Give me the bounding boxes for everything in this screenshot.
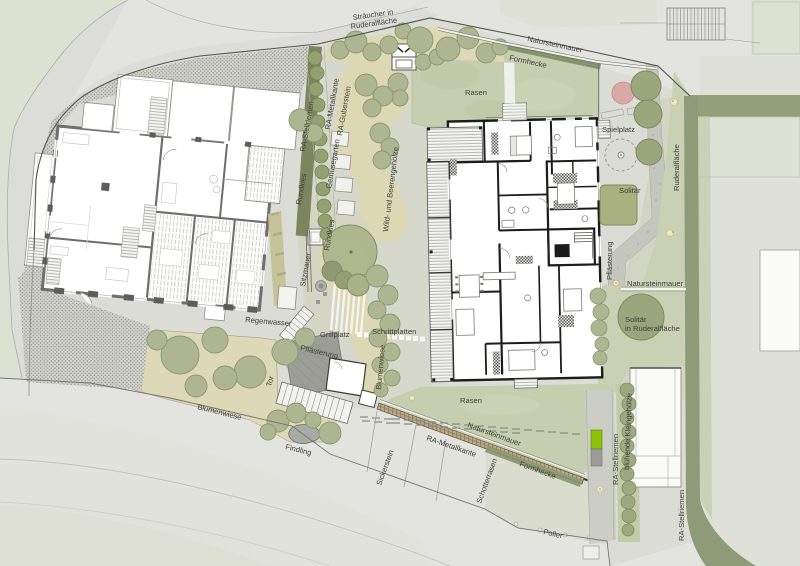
svg-text:Rasen: Rasen bbox=[465, 88, 487, 97]
svg-text:Schrittplatten: Schrittplatten bbox=[372, 327, 416, 336]
svg-text:Solitär: Solitär bbox=[625, 315, 647, 324]
svg-text:RA-Stellriemen: RA-Stellriemen bbox=[611, 434, 620, 485]
svg-text:Pflästerung: Pflästerung bbox=[605, 242, 614, 280]
svg-text:Grillplatz: Grillplatz bbox=[320, 330, 350, 339]
svg-text:Rasen: Rasen bbox=[460, 396, 482, 405]
svg-text:in Ruderalfläche: in Ruderalfläche bbox=[625, 324, 680, 333]
svg-text:Spielplatz: Spielplatz bbox=[602, 125, 635, 134]
svg-text:Solitär: Solitär bbox=[619, 186, 641, 195]
svg-text:Ruderalfläche: Ruderalfläche bbox=[672, 144, 681, 191]
svg-text:Natursteinmauer: Natursteinmauer bbox=[627, 279, 684, 288]
svg-text:RA-Stellriemen: RA-Stellriemen bbox=[677, 490, 686, 541]
